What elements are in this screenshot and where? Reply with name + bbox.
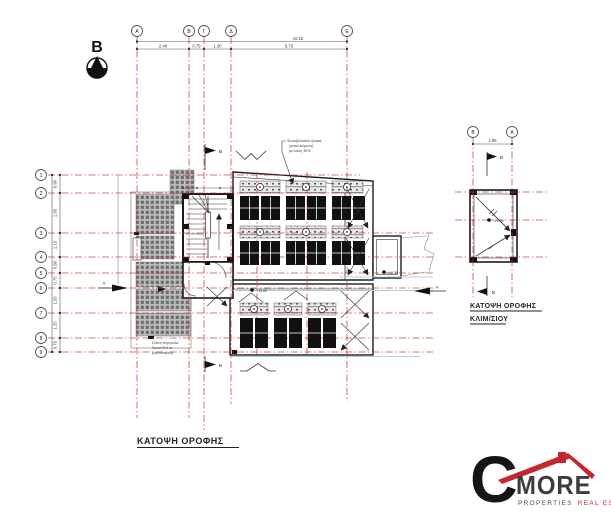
grid-bubble: 1 [40,173,43,179]
level-value: +10.60 [256,289,267,293]
dim-segment: 1.20 [53,296,58,305]
grid-bubble: 4 [40,255,43,261]
dim-segment: 0.75 [53,276,58,285]
logo-subtitle: PROPERTIESREAL ESTATES [518,500,611,507]
section-flag-icon [477,288,487,295]
grid-bubble: 3 [40,231,43,237]
annotation-line: (ανακλινόμενα) [289,144,313,148]
north-arrow: B [87,39,107,78]
section-flag-icon [205,147,216,154]
annotation-line: (εμποτισμού) [152,351,173,355]
dim-segment: 0.75 [192,44,201,49]
grid-bubble: 5 [40,271,43,277]
grid-bubble: 2 [40,191,43,197]
logo-subtitle-left: PROPERTIES [518,500,573,507]
section-flag-icon [487,153,497,160]
dim-total: 10.15 [293,36,304,41]
dim-segment: 1.30 [213,44,222,49]
break-line-icon [424,234,434,271]
stair-plan-building [470,190,517,262]
dim-segment: 1.95 [488,138,497,143]
grid-bubble: Γ [203,29,206,35]
stair-plan-title-line2: ΚΛΙΜ/ΣΙΟΥ [470,316,508,323]
annotation-line: με κλίση 30% [289,149,311,153]
logo-subtitle-right: REAL ESTATES [578,500,611,507]
level-value: +10.35 [387,271,398,275]
section-arrow-icon [112,285,128,292]
section-flag-icon [205,361,216,368]
architectural-drawing-sheet: B Α Β Γ Δ Ε 10.15 2.40 0.75 1.30 5.70 1 … [0,0,611,527]
dim-segment: 1.20 [53,321,58,330]
main-plan-title: ΚΑΤΟΨΗ ΟΡΟΦΗΣ [137,436,224,446]
dim-segment: 1.95 [53,208,58,217]
annotation-line: δοκοί 9Χ9 εκ. [152,346,173,350]
stair-plan-grid: Β Α 1.95 [468,127,518,146]
section-label: Β [219,149,222,154]
section-label: Β [492,290,495,295]
logo: C MORE PROPERTIESREAL ESTATES [466,448,608,524]
dim-segment: 0.70 [53,340,58,349]
column-grid-bubbles: Α Β Γ Δ Ε 10.15 2.40 0.75 1.30 5.70 [132,26,353,51]
section-label: Α [102,281,105,286]
section-arrow-icon [414,288,430,295]
grid-bubble: 8 [40,336,43,342]
section-label: Β [219,363,222,368]
dim-segment: 1.15 [53,240,58,249]
dim-segment: 0.80 [53,260,58,269]
section-label: Α [435,285,438,290]
annotation-line: ξύλινη πέργκολα [152,341,178,345]
row-grid-bubbles: 1 2 3 4 5 6 7 8 9 0.90 1.95 1.15 0.80 0.… [36,170,62,358]
roof-box [373,234,434,278]
section-label: Β [500,155,503,160]
grid-bubble: 6 [40,286,43,292]
dim-segment: 5.70 [285,44,294,49]
level-value: +10.95 [493,219,504,223]
grid-bubble: 9 [40,350,43,356]
stair-core [182,187,234,298]
dim-segment: 2.40 [159,44,168,49]
logo-name: MORE [516,470,591,501]
grid-bubble: 7 [40,311,43,317]
dim-segment: 0.90 [53,179,58,188]
stair-plan-title-line1: ΚΑΤΟΨΗ ΟΡΟΦΗΣ [470,303,536,310]
north-label: B [91,39,103,56]
annotation-line: Φωτοβολταϊκά ηλιακά [287,139,321,143]
